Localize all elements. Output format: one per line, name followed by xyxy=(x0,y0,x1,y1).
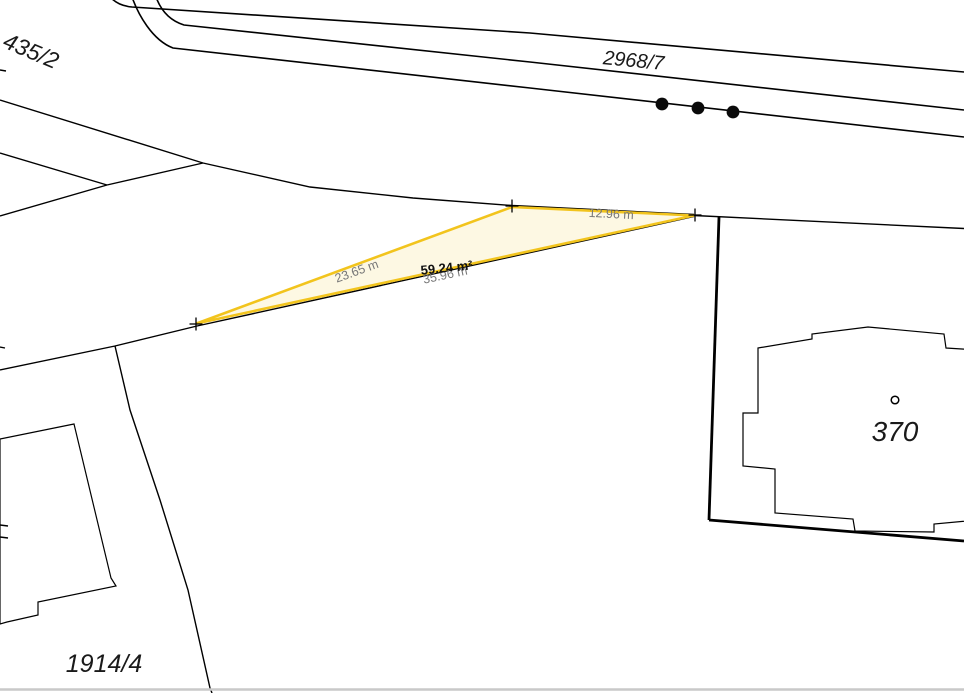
parcel-label-370: 370 xyxy=(872,416,919,447)
boundary-line xyxy=(0,185,107,216)
road-edge-lines xyxy=(110,0,964,137)
building-outline-370 xyxy=(743,327,964,532)
road-point-symbols xyxy=(656,98,740,119)
tick-mark xyxy=(0,537,8,538)
road-edge-bottom xyxy=(132,0,964,137)
parcel-label-1914-4: 1914/4 xyxy=(66,650,142,678)
vertex-marker[interactable] xyxy=(190,318,203,331)
building-point-marker xyxy=(891,396,899,404)
boundary-line xyxy=(115,346,212,693)
boundary-line xyxy=(0,217,694,371)
tick-mark xyxy=(0,525,8,526)
tick-mark xyxy=(0,347,5,348)
thick-parcel-boundaries xyxy=(709,217,964,541)
edge-length-label-top: 12.96 m xyxy=(588,206,634,222)
point-symbol-dot xyxy=(692,102,705,115)
building-outline-left xyxy=(0,424,116,624)
parcel-label-435-2: 435/2 xyxy=(0,27,63,74)
boundary-line-thick xyxy=(709,520,964,541)
parcel-boundary-lines xyxy=(0,100,964,693)
boundary-line xyxy=(694,216,964,229)
road-edge-top xyxy=(110,0,964,72)
boundary-line xyxy=(0,100,203,163)
edge-tick-marks xyxy=(0,70,8,538)
point-symbol-dot xyxy=(656,98,669,111)
point-symbol-dot xyxy=(727,106,740,119)
vertex-marker[interactable] xyxy=(689,209,702,222)
boundary-line xyxy=(0,153,107,185)
tick-mark xyxy=(0,70,6,71)
boundary-line-thick xyxy=(709,217,719,520)
cadastral-map-view: 23.65 m 12.96 m 35.96 m 59.24 m² 435/2 2… xyxy=(0,0,964,693)
boundary-line xyxy=(107,163,203,185)
